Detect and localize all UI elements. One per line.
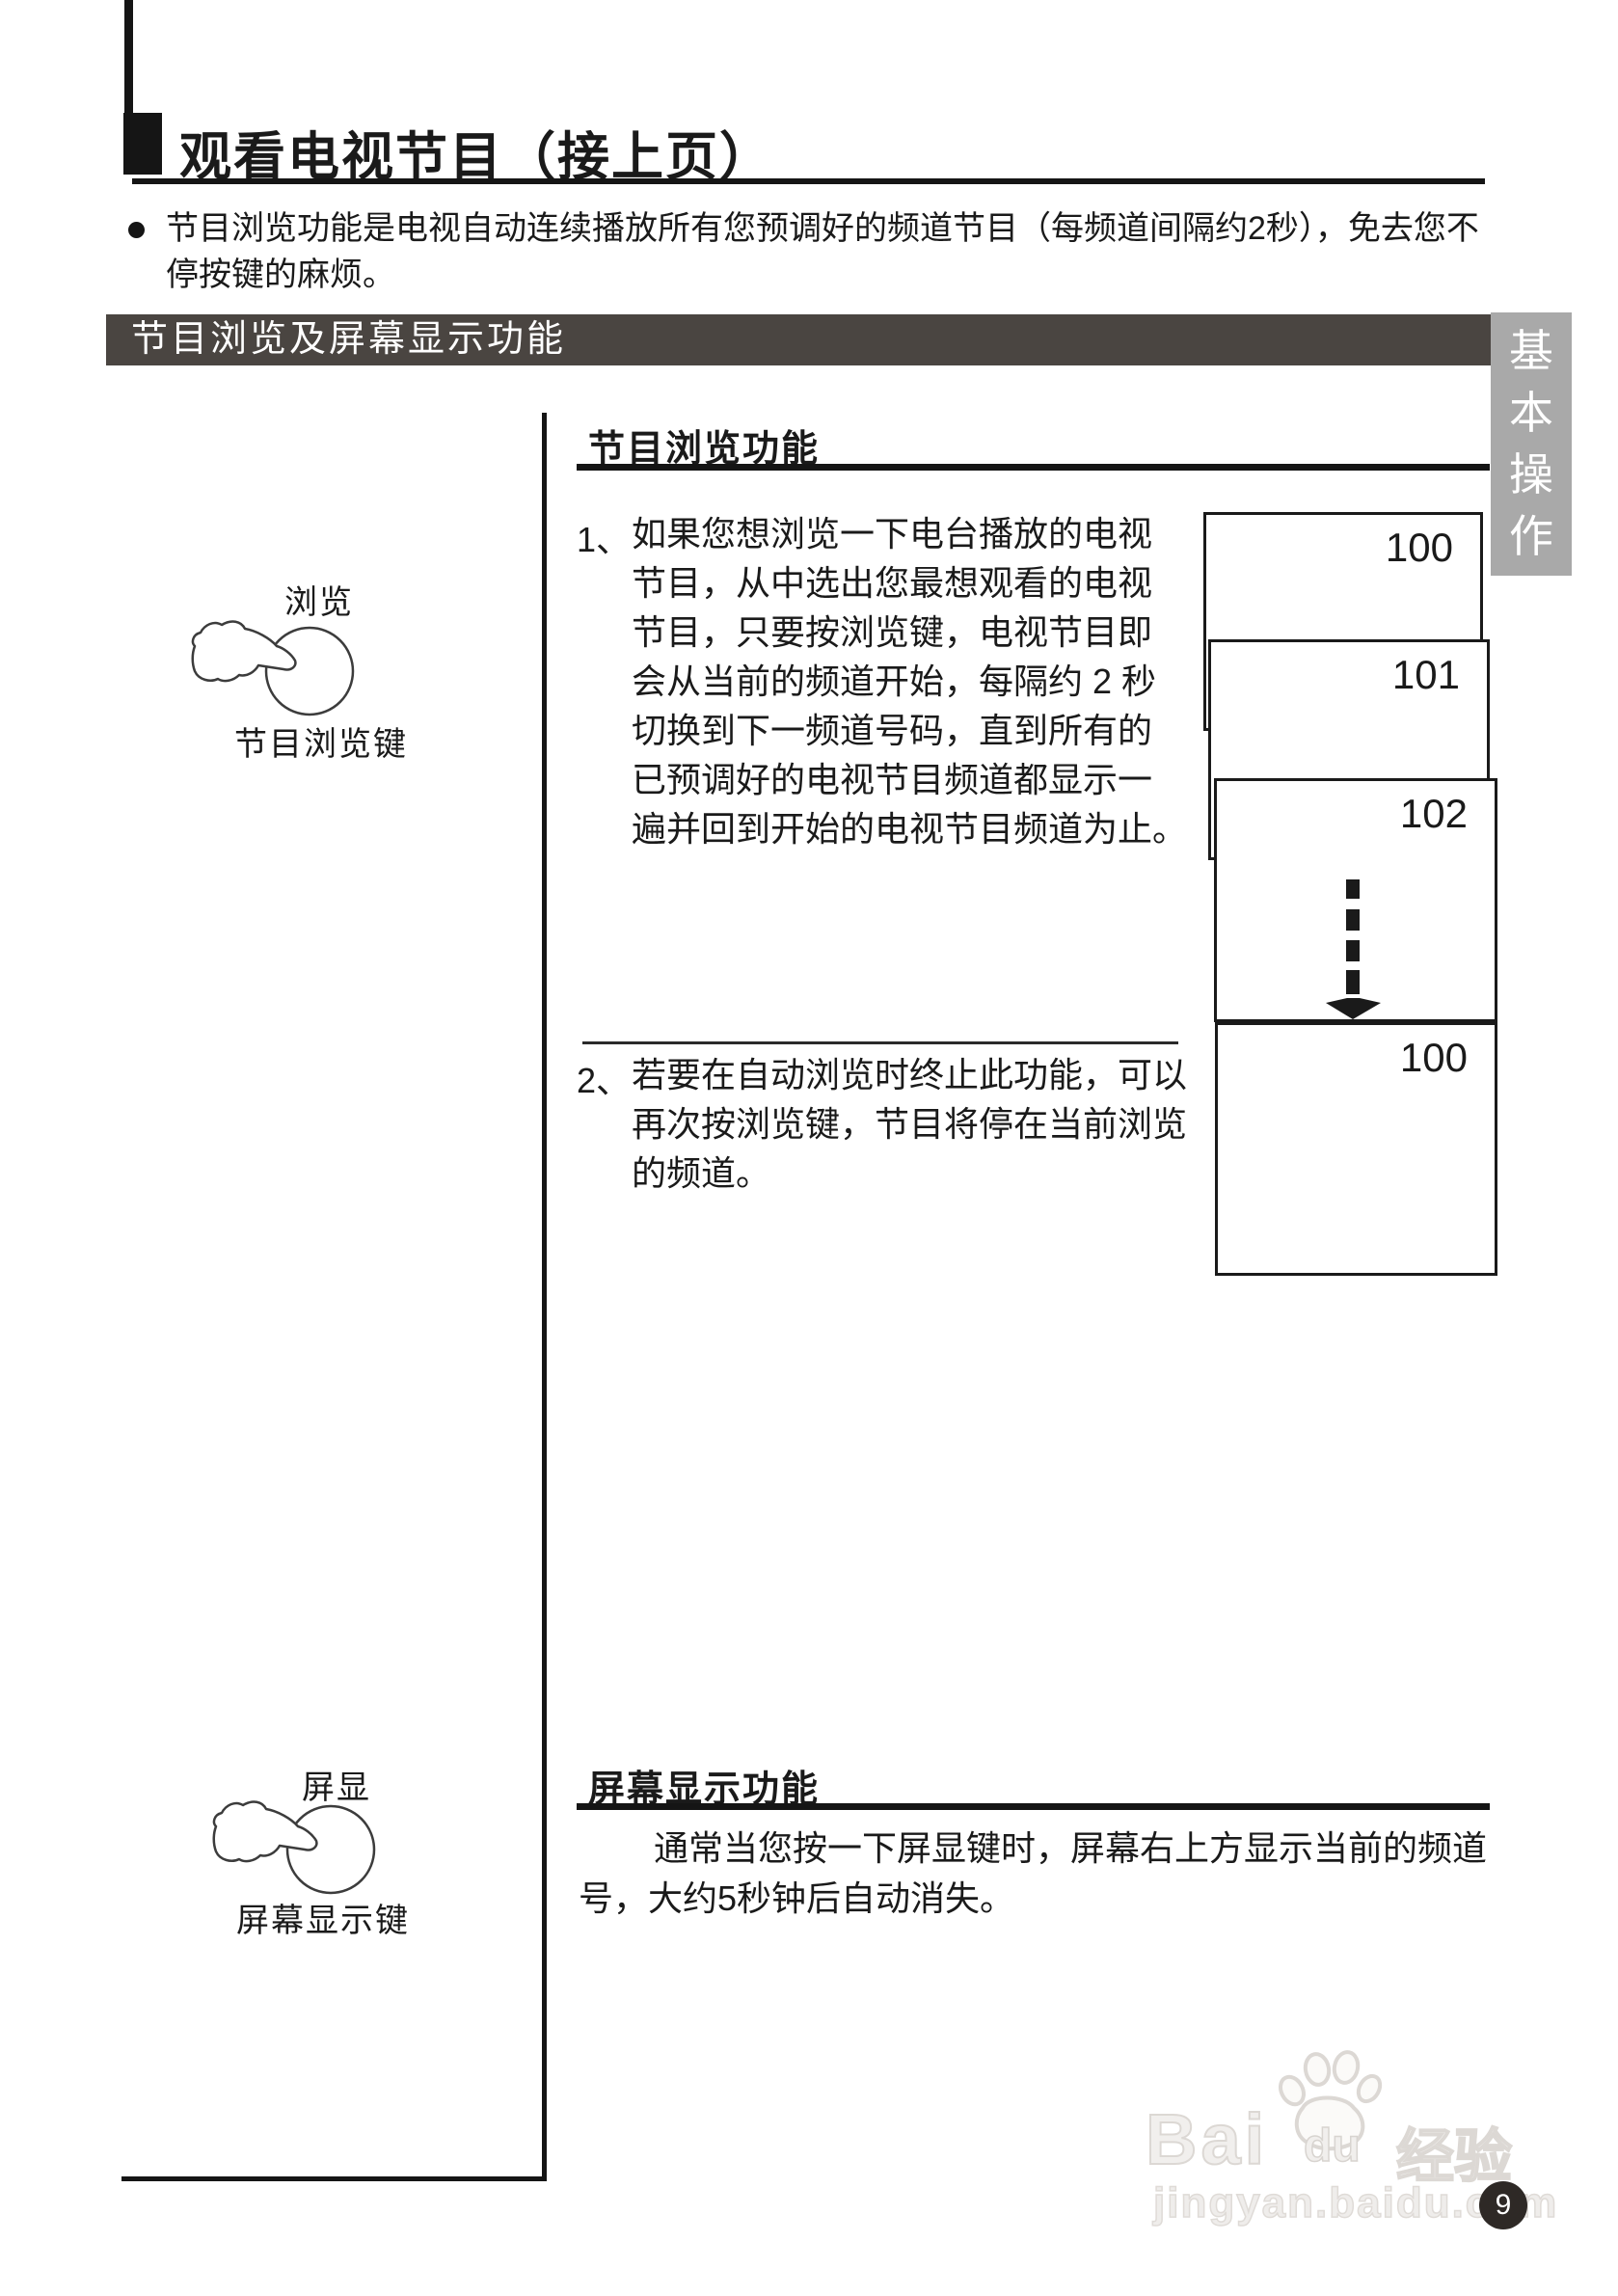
baidu-watermark-text: du: [1304, 2120, 1361, 2173]
item1-number: 1、: [577, 512, 631, 562]
item2-line: 若要在自动浏览时终止此功能，可以: [632, 1050, 1220, 1099]
pointing-hand-button-icon: [183, 590, 376, 735]
chapter-tab: 基本操作: [1491, 312, 1572, 576]
item1-line: 如果您想浏览一下电台播放的电视: [632, 509, 1220, 558]
item1-line: 已预调好的电视节目频道都显示一: [632, 755, 1220, 804]
channel-screen-box: 100: [1215, 1022, 1497, 1276]
bullet-icon: [128, 222, 145, 238]
baidu-watermark-text: Bai: [1146, 2098, 1268, 2180]
item2-line: 再次按浏览键，节目将停在当前浏览: [632, 1099, 1220, 1148]
item2-number: 2、: [577, 1053, 631, 1103]
display-heading-underline: [577, 1803, 1490, 1810]
title-underline: [132, 178, 1485, 184]
channel-number: 102: [1400, 791, 1468, 837]
channel-number: 101: [1392, 652, 1460, 698]
arrow-down-icon: [1325, 873, 1383, 1027]
display-line: 号，大约5秒钟后自动消失。: [579, 1874, 1495, 1924]
item1-line: 会从当前的频道开始，每隔约 2 秒: [632, 657, 1220, 706]
item1-text: 如果您想浏览一下电台播放的电视 节目，从中选出您最想观看的电视 节目，只要按浏览…: [632, 509, 1220, 853]
item2-line: 的频道。: [632, 1148, 1220, 1198]
section-bar: 节目浏览及屏幕显示功能: [106, 314, 1491, 365]
bottom-rule-line: [121, 2176, 547, 2181]
intro-paragraph: 节目浏览功能是电视自动连续播放所有您预调好的频道节目（每频道间隔约2秒），免去您…: [166, 205, 1504, 298]
spine-mark: [124, 0, 133, 114]
title-square-marker: [123, 113, 162, 175]
browse-heading-underline: [577, 464, 1490, 471]
item1-line: 节目，只要按浏览键，电视节目即: [632, 608, 1220, 657]
browse-key-caption: 节目浏览键: [234, 717, 408, 765]
page-number-badge: 9: [1479, 2181, 1527, 2229]
section-bar-label: 节目浏览及屏幕显示功能: [131, 319, 566, 360]
channel-number: 100: [1386, 525, 1453, 571]
item2-text: 若要在自动浏览时终止此功能，可以 再次按浏览键，节目将停在当前浏览 的频道。: [632, 1050, 1220, 1198]
display-key-caption: 屏幕显示键: [236, 1894, 410, 1941]
chapter-tab-label: 基本操作: [1509, 320, 1553, 567]
display-line: 通常当您按一下屏显键时，屏幕右上方显示当前的频道: [579, 1823, 1495, 1874]
item1-line: 节目，从中选出您最想观看的电视: [632, 558, 1220, 608]
item2-separator-line: [582, 1041, 1178, 1044]
key-button-circle: [266, 628, 353, 715]
item1-line: 遍并回到开始的电视节目频道为止。: [632, 804, 1220, 853]
display-paragraph: 通常当您按一下屏显键时，屏幕右上方显示当前的频道 号，大约5秒钟后自动消失。: [579, 1823, 1495, 1924]
item1-line: 切换到下一频道号码，直到所有的: [632, 706, 1220, 755]
manual-page: 观看电视节目（接上页） 节目浏览功能是电视自动连续播放所有您预调好的频道节目（每…: [0, 0, 1618, 2296]
column-divider-line: [542, 413, 547, 2181]
channel-number: 100: [1400, 1035, 1468, 1081]
